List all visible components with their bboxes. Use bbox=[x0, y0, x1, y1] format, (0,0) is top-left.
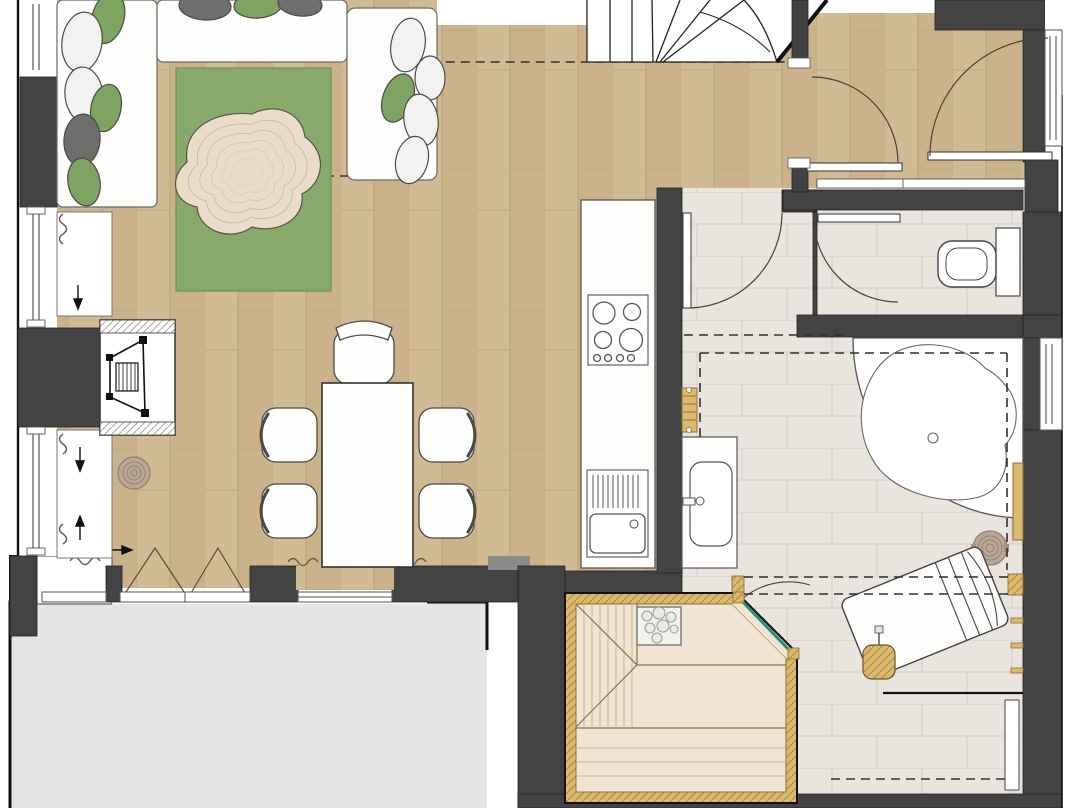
floor-plan bbox=[0, 0, 1080, 808]
window bbox=[1045, 30, 1062, 146]
wall-wc-south bbox=[797, 315, 1023, 337]
wood-ledge bbox=[1013, 463, 1023, 540]
rugs bbox=[176, 68, 331, 291]
kitchen bbox=[581, 200, 655, 568]
wall-east bbox=[1023, 430, 1062, 808]
tap bbox=[683, 498, 695, 505]
wall-east bbox=[1023, 212, 1062, 315]
window-reveal-lower bbox=[57, 430, 112, 558]
dining-chair bbox=[262, 408, 317, 462]
basin bbox=[690, 462, 732, 546]
dining-chair bbox=[419, 408, 474, 462]
towel-radiator bbox=[682, 388, 697, 433]
fireplace-hatch bbox=[100, 422, 175, 435]
wall-east bbox=[1023, 315, 1062, 338]
window-reveal-upper bbox=[57, 212, 112, 316]
sauna-heater bbox=[637, 607, 681, 645]
terrace-deck bbox=[10, 602, 487, 808]
door-post bbox=[788, 648, 799, 659]
wall-north-east bbox=[935, 0, 1045, 30]
door-jamb bbox=[788, 158, 810, 168]
dining-chair bbox=[419, 484, 474, 538]
wall-hall-south bbox=[783, 190, 1023, 210]
wc-door-leaf bbox=[818, 214, 900, 222]
ladle bbox=[875, 626, 883, 633]
wall-kitchen-bathroom bbox=[657, 188, 682, 573]
wall-mass-bottom bbox=[518, 566, 565, 808]
wall-segment bbox=[250, 566, 298, 602]
dining-chair bbox=[262, 484, 317, 538]
door-jamb bbox=[788, 58, 810, 68]
sliding-door-threshold bbox=[296, 566, 394, 590]
wall-glazing-strip bbox=[817, 179, 1025, 188]
door-leaf bbox=[807, 163, 902, 171]
cistern bbox=[996, 228, 1020, 296]
window-frame bbox=[42, 592, 106, 602]
stair-void bbox=[437, 0, 587, 25]
door-post bbox=[733, 592, 744, 603]
bench bbox=[1005, 700, 1019, 790]
chimney-wall bbox=[18, 328, 100, 427]
wood-post bbox=[1008, 574, 1023, 595]
wall-east bbox=[1023, 30, 1045, 162]
dining-table bbox=[322, 383, 413, 567]
window bbox=[1040, 338, 1062, 430]
door-leaf bbox=[928, 152, 1052, 160]
wall-stub bbox=[792, 166, 808, 192]
east-margin bbox=[1062, 0, 1080, 808]
sink-basin bbox=[590, 514, 645, 553]
fireplace-hatch bbox=[100, 320, 175, 333]
wall-corner bbox=[10, 556, 37, 636]
wall-stair-stub bbox=[792, 0, 808, 58]
wall-east bbox=[1025, 160, 1058, 212]
wall-segment bbox=[20, 77, 57, 207]
wall-east bbox=[1023, 338, 1040, 430]
bathroom-door-leaf bbox=[683, 213, 691, 308]
floor-plan-drawing bbox=[0, 0, 1080, 808]
cushion-white bbox=[415, 56, 445, 100]
wall-segment bbox=[392, 566, 518, 602]
